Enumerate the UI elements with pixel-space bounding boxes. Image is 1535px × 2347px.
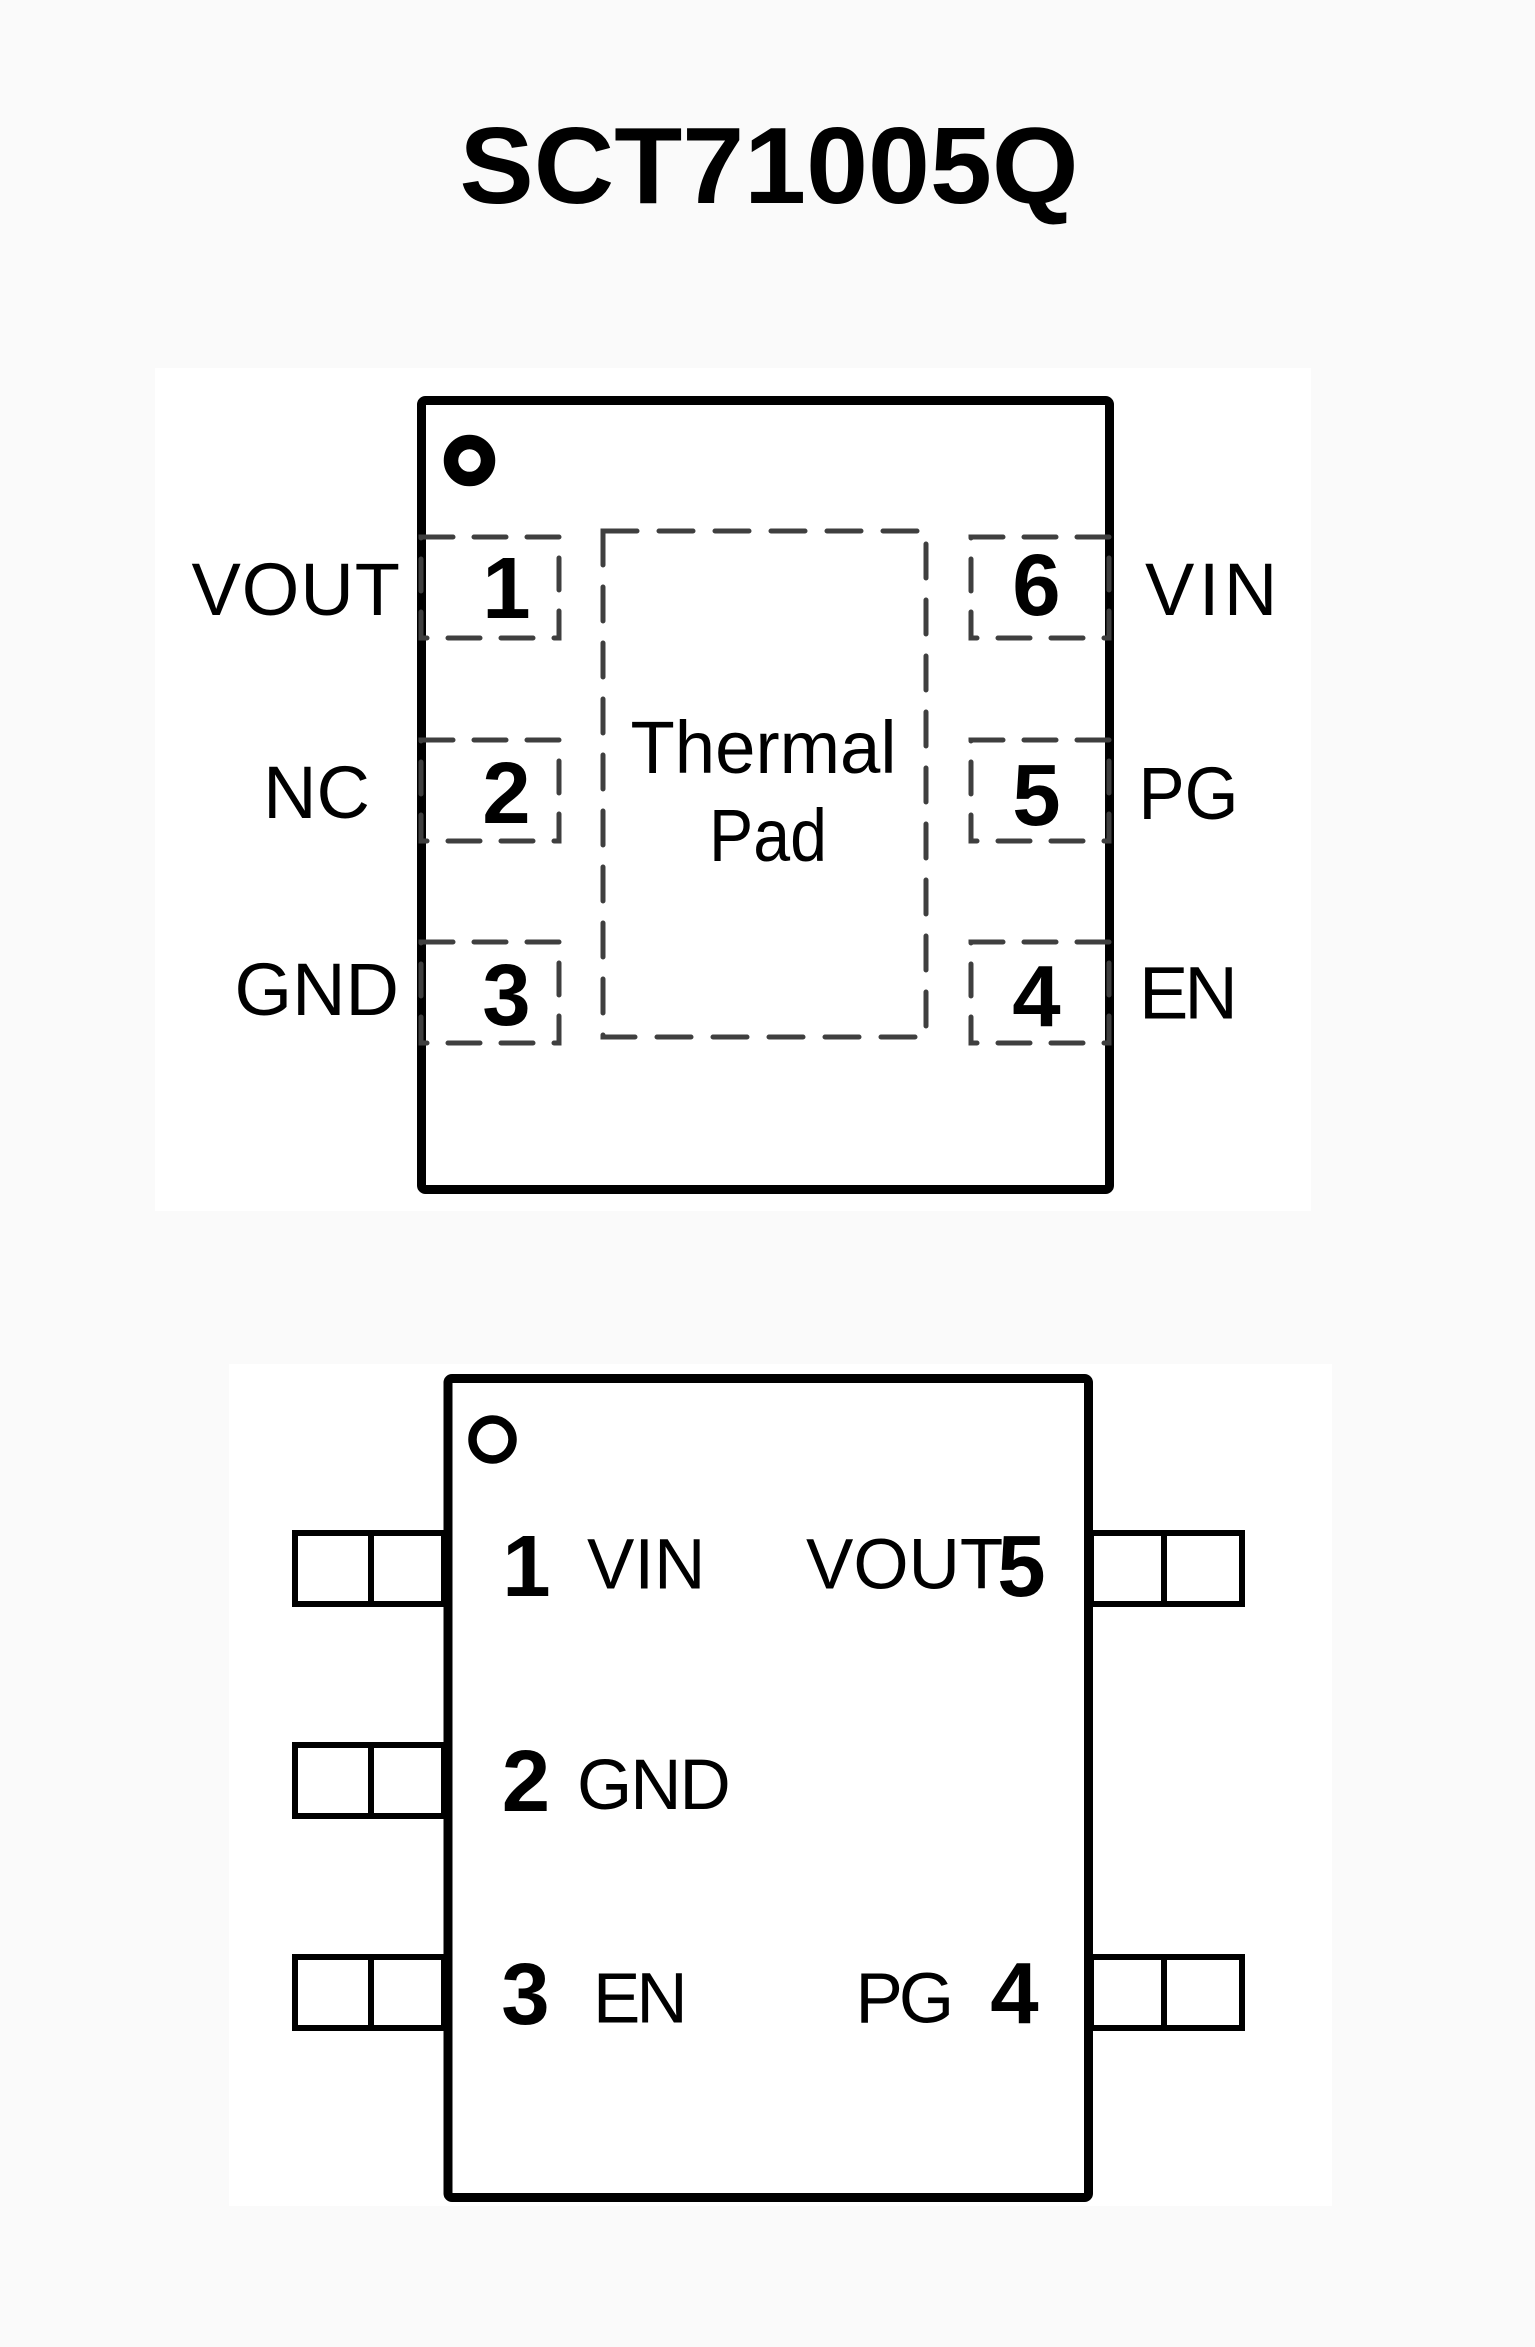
svg-text:1: 1 — [482, 540, 530, 637]
svg-text:1: 1 — [502, 1518, 550, 1615]
svg-text:3: 3 — [482, 947, 530, 1044]
svg-text:PG: PG — [856, 1960, 951, 2039]
svg-text:EN: EN — [1139, 952, 1234, 1035]
svg-text:2: 2 — [502, 1733, 550, 1830]
svg-text:VIN: VIN — [587, 1526, 705, 1605]
svg-text:PG: PG — [1139, 752, 1239, 835]
svg-text:4: 4 — [990, 1945, 1038, 2042]
svg-text:2: 2 — [482, 745, 530, 842]
svg-text:SCT71005Q: SCT71005Q — [460, 105, 1079, 227]
svg-text:Pad: Pad — [709, 794, 827, 877]
svg-text:GND: GND — [235, 948, 399, 1031]
svg-text:VIN: VIN — [1145, 548, 1282, 631]
svg-text:5: 5 — [1012, 747, 1060, 844]
svg-text:GND: GND — [577, 1746, 729, 1825]
svg-text:5: 5 — [997, 1518, 1045, 1615]
svg-text:VOUT: VOUT — [806, 1526, 1003, 1605]
svg-text:3: 3 — [501, 1946, 549, 2043]
svg-text:4: 4 — [1012, 948, 1060, 1045]
svg-text:NC: NC — [263, 751, 370, 834]
svg-text:Thermal: Thermal — [631, 706, 897, 789]
svg-text:VOUT: VOUT — [191, 548, 401, 631]
svg-text:EN: EN — [593, 1960, 684, 2039]
svg-text:6: 6 — [1012, 537, 1060, 634]
